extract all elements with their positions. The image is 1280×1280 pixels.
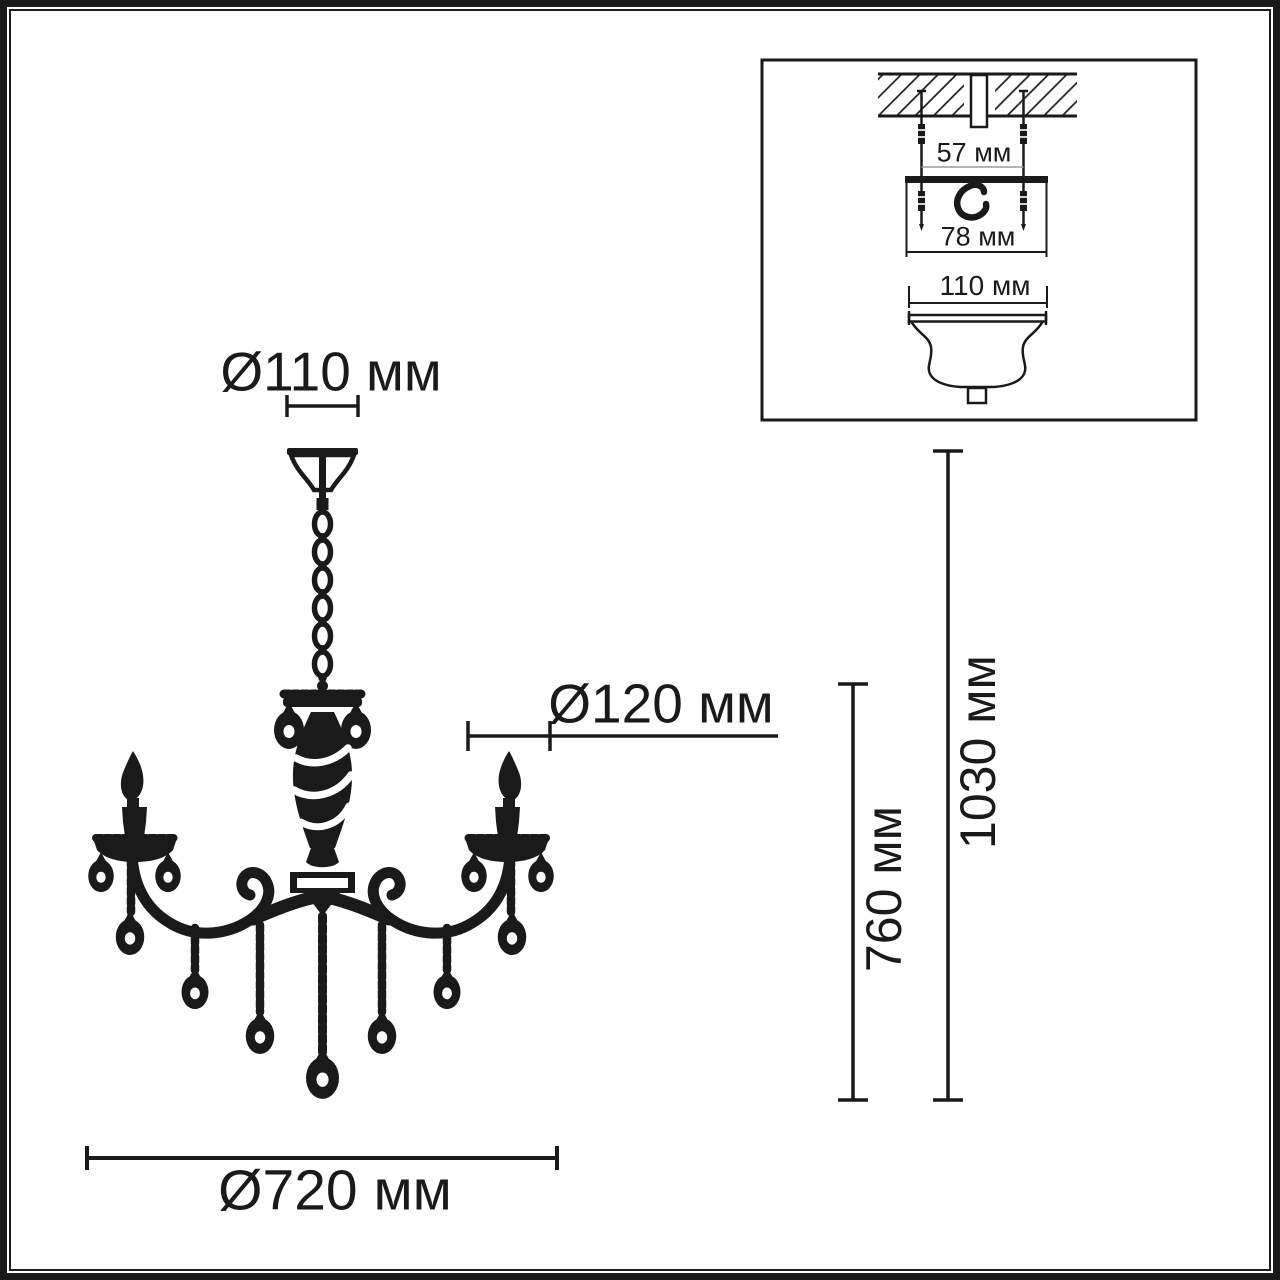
right-arm-and-candle (321, 751, 554, 1054)
technical-drawing-sheet: Ø110 мм Ø120 мм Ø720 мм 760 мм 1030 мм 5… (0, 0, 1280, 1280)
chandelier-dimension-drawing (0, 0, 1280, 1280)
total-height-label: 1030 мм (953, 655, 1003, 849)
body-height-label: 760 мм (859, 806, 909, 972)
bracket-width-label: 78 мм (941, 224, 1016, 251)
socket-diameter-label: Ø120 мм (548, 677, 773, 732)
twisted-baluster-column (293, 712, 352, 867)
left-arm-and-candle (88, 751, 321, 1054)
screw-spacing-label: 57 мм (937, 140, 1012, 167)
center-bolt (971, 75, 987, 127)
overall-diameter-label: Ø720 мм (218, 1163, 452, 1220)
cup-diameter-label: 110 мм (940, 272, 1031, 300)
suspension-chain (315, 512, 331, 682)
ceiling-canopy (287, 448, 358, 510)
center-crystal-strand (306, 916, 339, 1099)
canopy-diameter-label: Ø110 мм (220, 345, 441, 400)
chandelier-figure (88, 448, 554, 1099)
